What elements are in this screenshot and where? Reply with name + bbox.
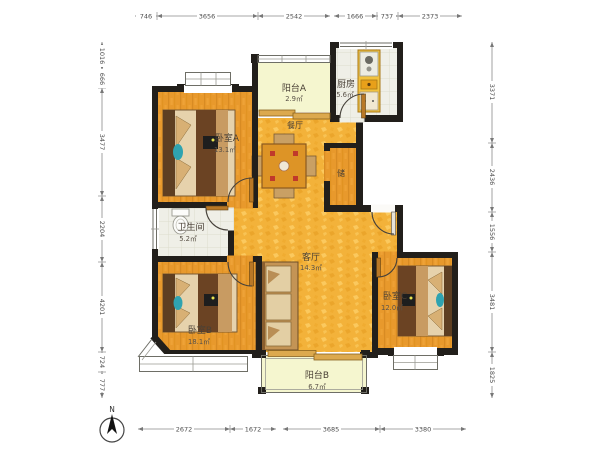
- room-label-bedroom-c: 卧室C: [383, 290, 407, 302]
- dim-bottom-3: 3380: [415, 426, 432, 434]
- dim-right-2: 1556: [488, 224, 496, 241]
- room-label-bedroom-a: 卧室A: [215, 132, 240, 144]
- dim-left: 1016 666 3477 2204 4201 724 777: [98, 42, 106, 398]
- dim-top-4: 737: [381, 13, 393, 21]
- dim-top: 746 3656 2542 1666 737 2373: [135, 12, 462, 21]
- dim-bottom-0: 2672: [176, 426, 193, 434]
- room-area-bedroom-a: 13.1㎡: [214, 145, 236, 154]
- room-area-balcony-b: 6.7㎡: [308, 382, 326, 391]
- room-label-bathroom: 卫生间: [177, 221, 204, 233]
- room-label-bedroom-b: 卧室B: [188, 324, 212, 336]
- dim-left-2: 3477: [98, 134, 106, 151]
- dim-bottom: 2672 1672 3685 3380: [138, 425, 466, 434]
- dim-top-2: 2542: [286, 13, 303, 21]
- floorplan-page: 卧室A 13.1㎡ 阳台A 2.9㎡ 厨房 5.6㎡ 餐厅 储 卫生间 5.2㎡…: [0, 0, 600, 450]
- entry-corridor-floor: [330, 212, 397, 252]
- dim-left-0: 1016: [98, 48, 106, 65]
- dim-left-5: 724: [98, 356, 106, 368]
- dim-top-3: 1666: [347, 13, 364, 21]
- dim-left-6: 777: [98, 379, 106, 391]
- room-area-kitchen: 5.6㎡: [336, 90, 354, 99]
- room-label-dining: 餐厅: [287, 121, 303, 130]
- dim-top-5: 2373: [422, 13, 439, 21]
- room-label-balcony-a: 阳台A: [282, 82, 307, 94]
- dim-right: 3371 2436 1556 3481 1825: [488, 42, 496, 398]
- room-area-bedroom-c: 12.0㎡: [381, 303, 403, 312]
- dim-left-1: 666: [98, 73, 106, 85]
- dim-bottom-1: 1672: [245, 426, 262, 434]
- dim-right-4: 1825: [488, 367, 496, 384]
- room-label-living: 客厅: [302, 251, 320, 263]
- room-area-living: 14.3㎡: [300, 263, 322, 272]
- balcony-a-window-icon: [258, 56, 330, 63]
- bed-b-icon: [163, 274, 237, 332]
- dim-right-3: 3481: [488, 294, 496, 311]
- compass-icon: N: [100, 405, 124, 442]
- dim-left-3: 2204: [98, 221, 106, 238]
- room-area-bathroom: 5.2㎡: [179, 234, 197, 243]
- sofa-icon: [256, 262, 298, 350]
- dim-bottom-2: 3685: [323, 426, 340, 434]
- dining-table-icon: [252, 134, 316, 198]
- room-label-kitchen: 厨房: [337, 78, 355, 90]
- room-label-balcony-b: 阳台B: [305, 369, 329, 381]
- room-area-balcony-a: 2.9㎡: [285, 94, 303, 103]
- room-area-bedroom-b: 18.1㎡: [188, 337, 210, 346]
- floorplan-canvas: 卧室A 13.1㎡ 阳台A 2.9㎡ 厨房 5.6㎡ 餐厅 储 卫生间 5.2㎡…: [0, 0, 600, 450]
- dim-right-1: 2436: [488, 169, 496, 186]
- dim-top-0: 746: [140, 13, 152, 21]
- bedroom-c-bay-window-icon: [394, 356, 438, 370]
- dim-top-1: 3656: [199, 13, 216, 21]
- bedroom-a-bay-window-icon: [186, 73, 231, 86]
- compass-north-label: N: [109, 405, 115, 414]
- dim-left-4: 4201: [98, 299, 106, 316]
- dim-right-0: 3371: [488, 84, 496, 101]
- room-label-storage: 储: [337, 168, 345, 178]
